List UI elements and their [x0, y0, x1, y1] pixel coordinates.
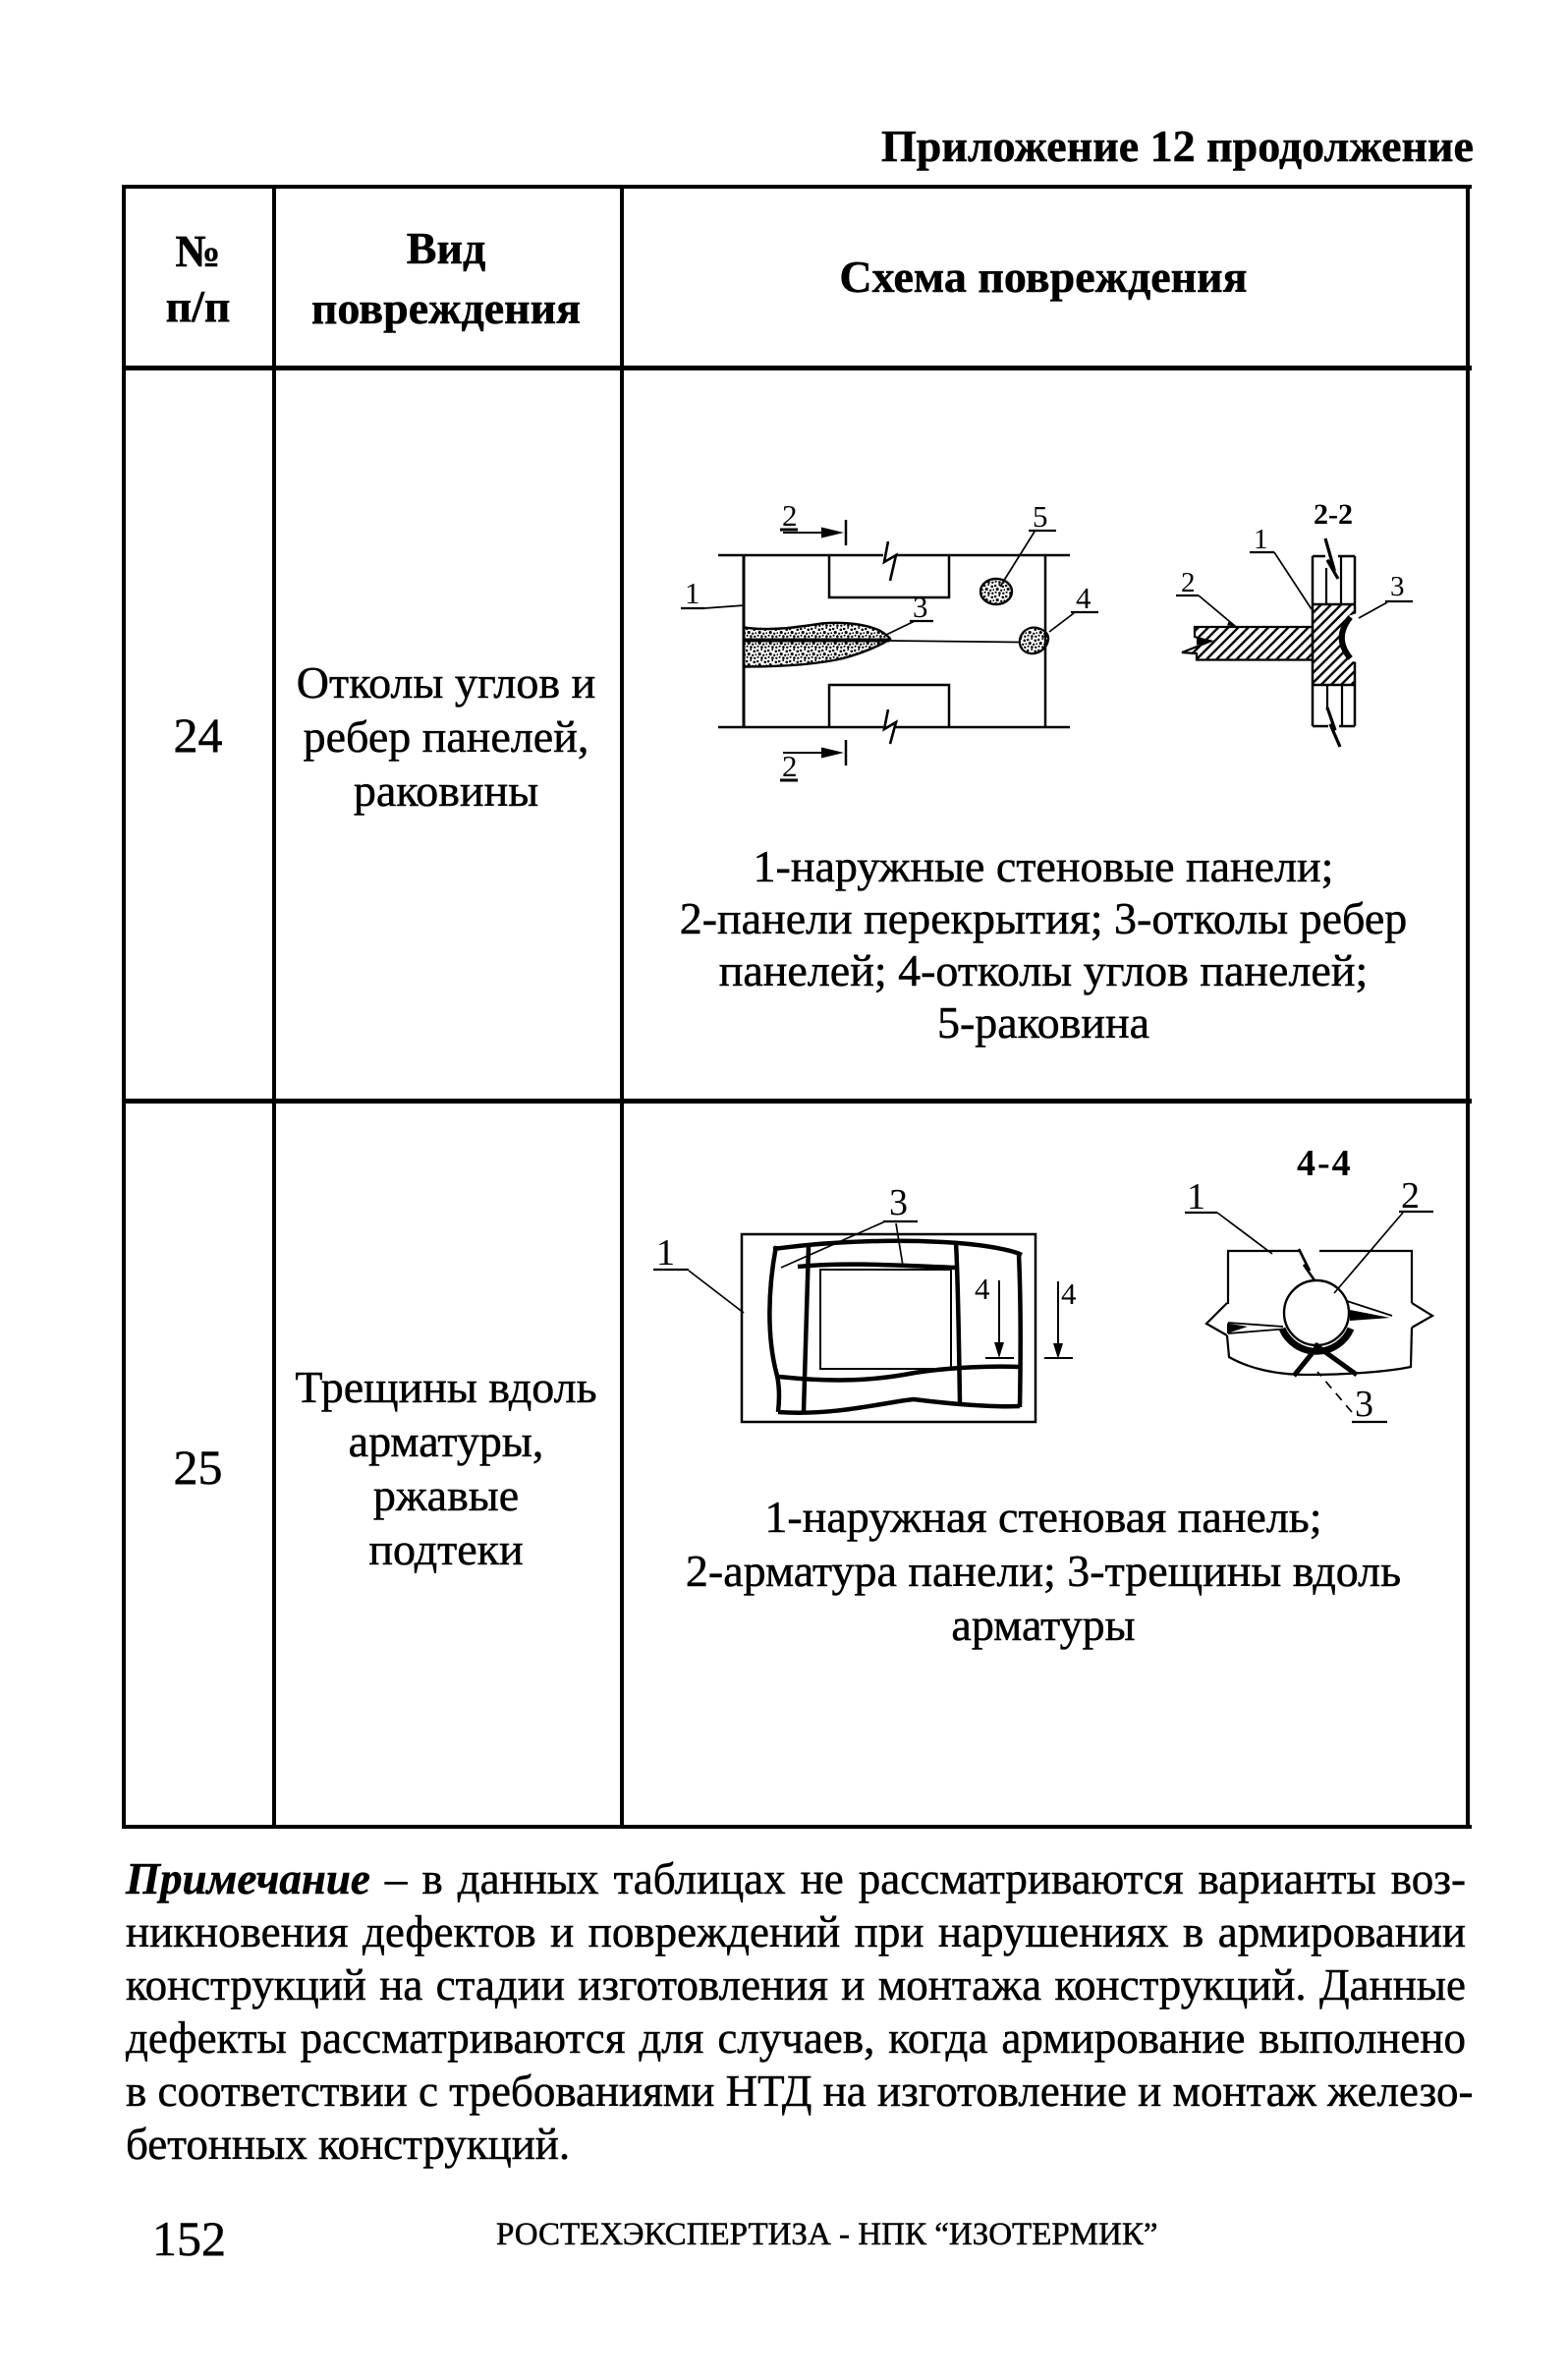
svg-text:5: 5: [1033, 499, 1048, 534]
svg-text:2-2: 2-2: [1314, 498, 1353, 531]
svg-text:4-4: 4-4: [1297, 1143, 1353, 1184]
svg-text:4: 4: [1061, 1276, 1077, 1311]
svg-text:2: 2: [1401, 1175, 1420, 1217]
svg-text:3: 3: [889, 1182, 908, 1223]
svg-text:2: 2: [1181, 567, 1196, 598]
svg-text:2: 2: [782, 749, 798, 783]
svg-text:3: 3: [1355, 1384, 1373, 1425]
svg-text:1: 1: [656, 1232, 675, 1274]
svg-text:2: 2: [782, 498, 798, 533]
svg-text:1: 1: [1187, 1176, 1205, 1218]
svg-text:4: 4: [975, 1272, 990, 1306]
svg-text:3: 3: [913, 590, 928, 624]
svg-text:1: 1: [685, 576, 700, 610]
svg-text:3: 3: [1390, 571, 1405, 602]
svg-text:1: 1: [1254, 524, 1268, 555]
svg-text:4: 4: [1076, 581, 1091, 615]
